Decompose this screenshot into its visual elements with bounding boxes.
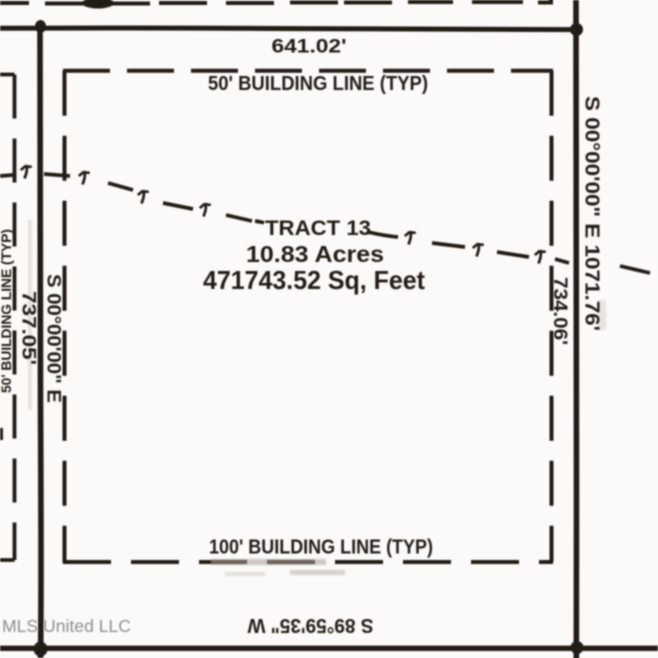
svg-text:471743.52 Sq, Feet: 471743.52 Sq, Feet	[203, 265, 425, 295]
svg-text:50' BUILDING LINE (TYP): 50' BUILDING LINE (TYP)	[0, 229, 14, 393]
svg-text:641.02': 641.02'	[272, 37, 347, 58]
svg-text:TRACT 13: TRACT 13	[265, 216, 371, 240]
svg-text:S 00°00'00" E 1071.76': S 00°00'00" E 1071.76'	[581, 96, 603, 331]
svg-text:10.83 Acres: 10.83 Acres	[246, 241, 384, 267]
svg-text:100' BUILDING LINE (TYP): 100' BUILDING LINE (TYP)	[209, 537, 433, 559]
svg-text:S 89°59'35" W: S 89°59'35" W	[247, 614, 373, 636]
svg-text:S 00°00'00" E: S 00°00'00" E	[43, 274, 64, 403]
svg-text:MLS United LLC: MLS United LLC	[2, 616, 131, 636]
svg-text:734.06': 734.06'	[549, 277, 570, 345]
svg-text:737.05': 737.05'	[18, 291, 39, 365]
svg-text:50' BUILDING LINE (TYP): 50' BUILDING LINE (TYP)	[208, 73, 428, 95]
